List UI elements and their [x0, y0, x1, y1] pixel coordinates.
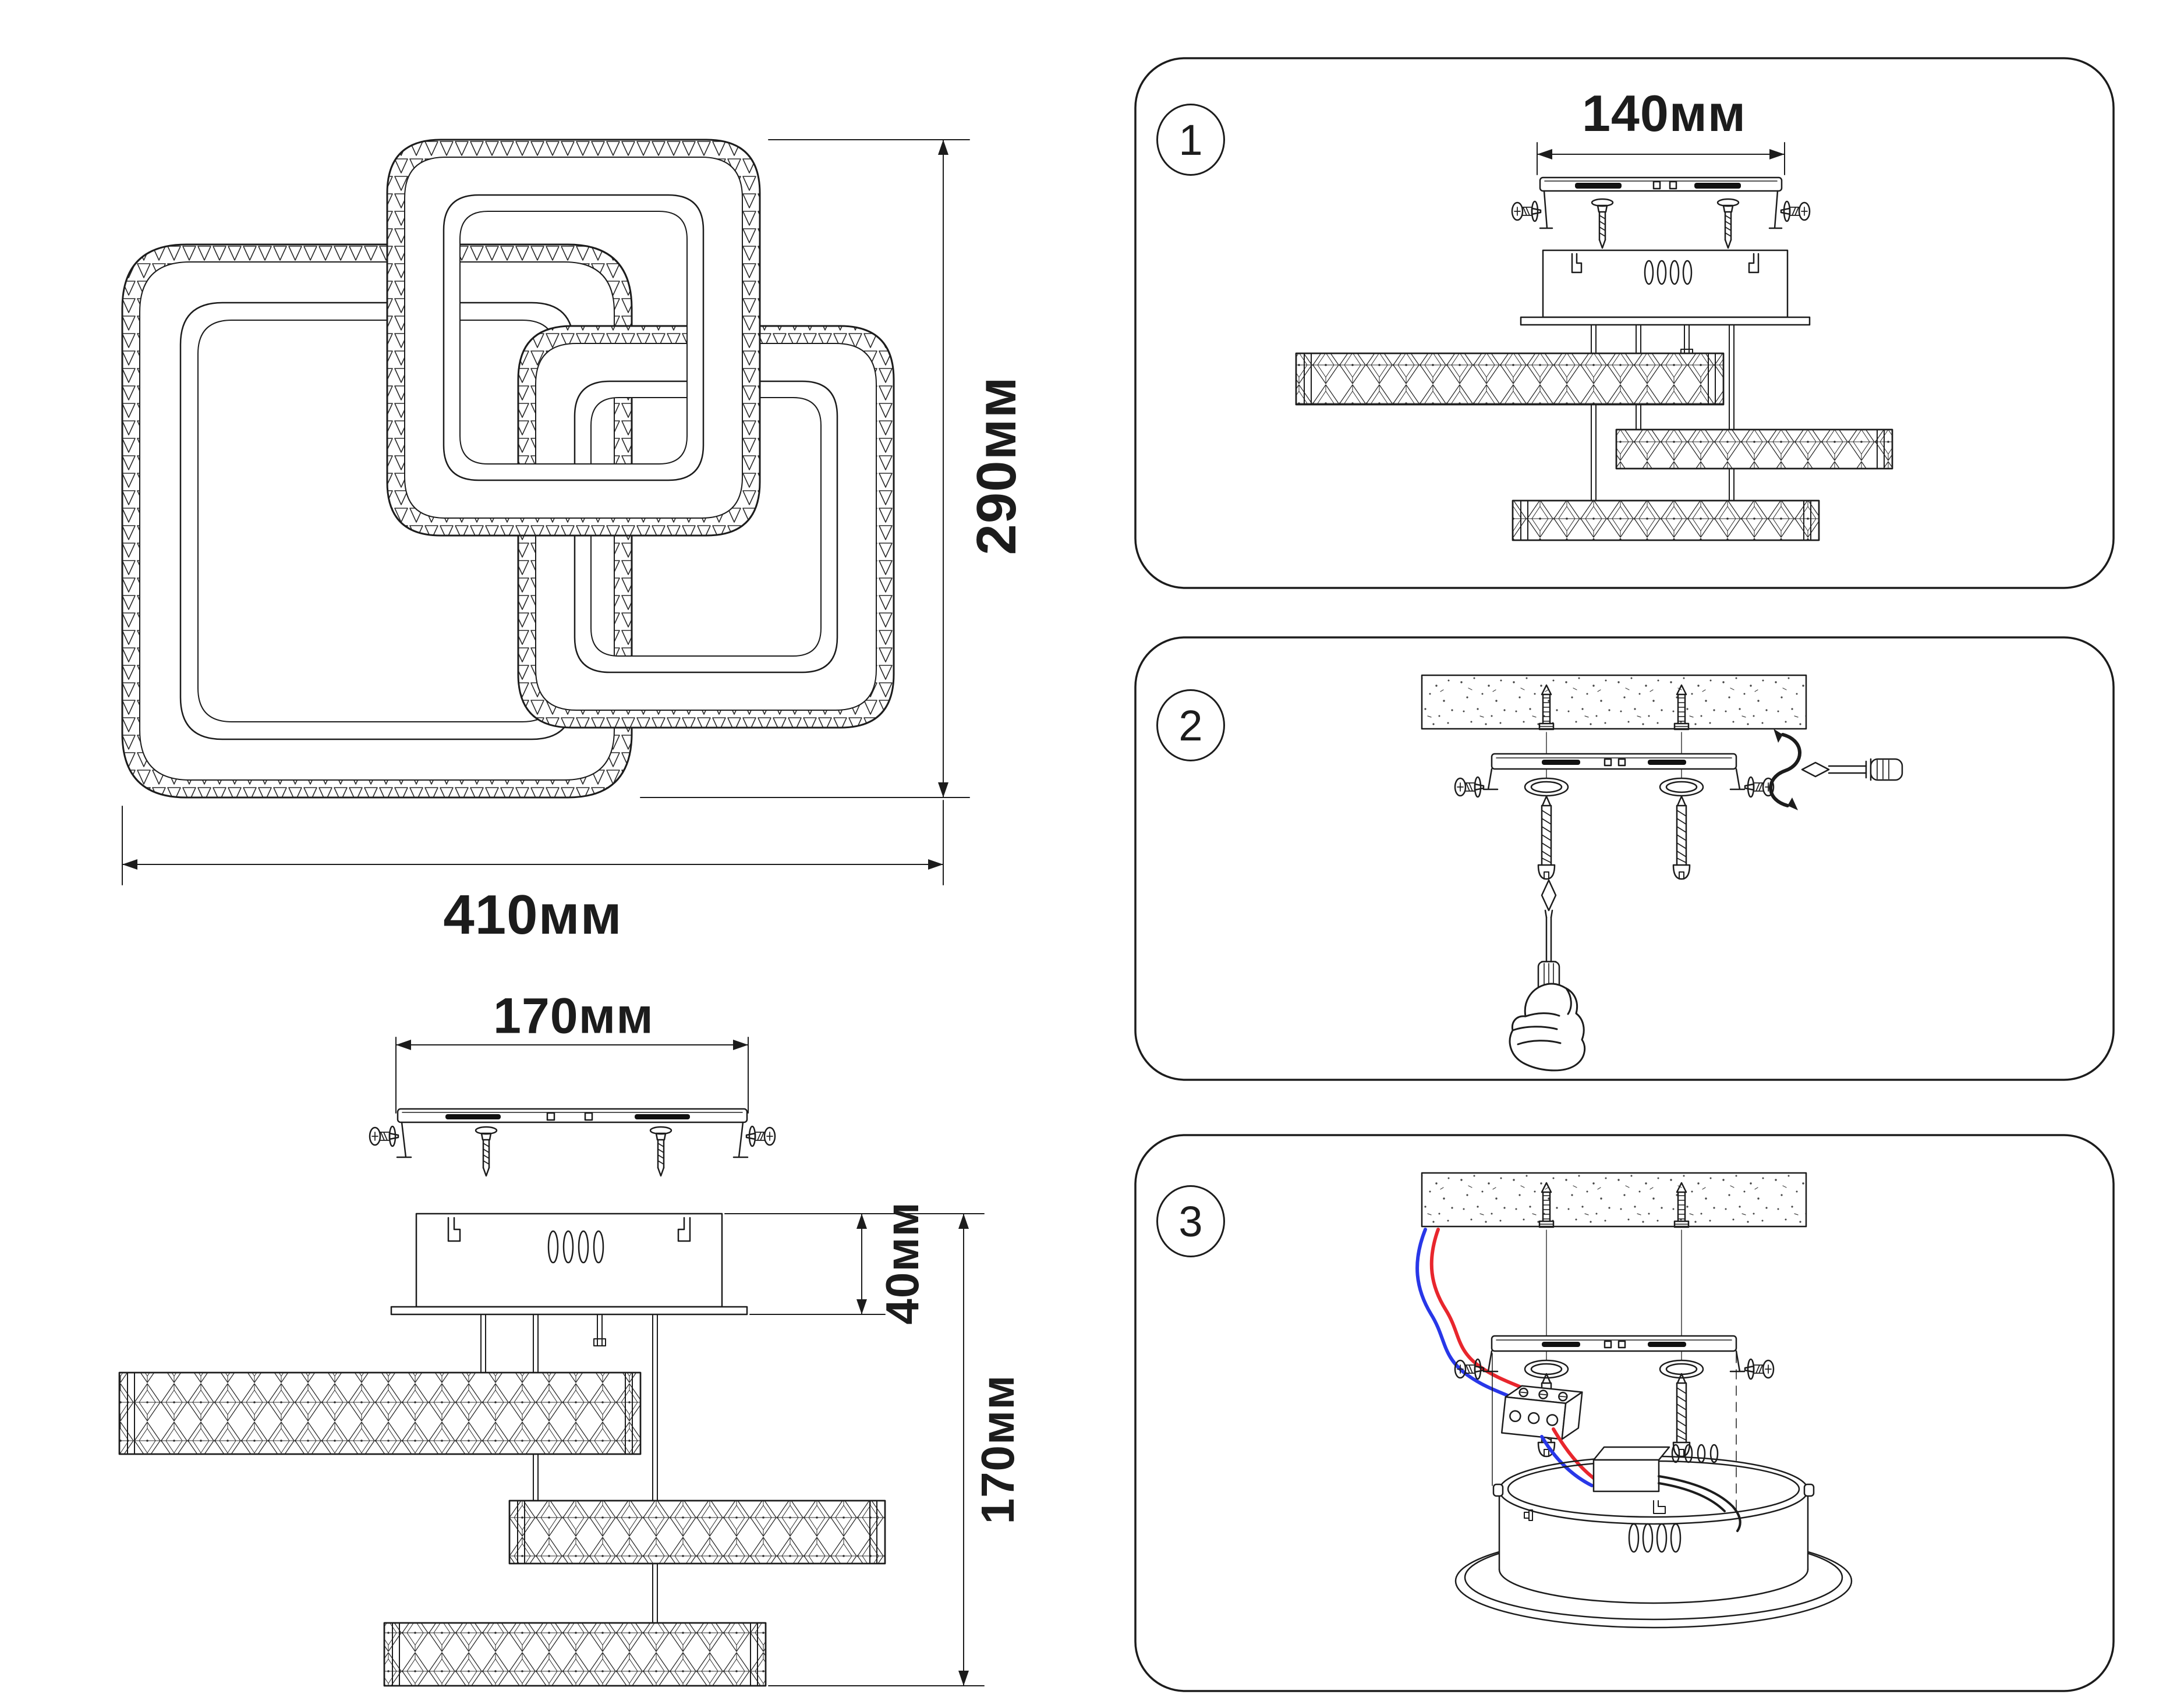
top-view-height-label: 290мм — [965, 376, 1029, 555]
screwdriver-horizontal-icon — [1802, 759, 1902, 780]
step2-number-badge: 2 — [1156, 689, 1225, 761]
side-view-crystal-bars — [119, 1373, 885, 1686]
side-view-width-label: 170мм — [493, 988, 654, 1045]
side-view-drawing — [119, 1037, 984, 1686]
step1-dimension — [1537, 143, 1785, 175]
step2-illustration — [1422, 675, 1902, 1070]
neutral-wire-stub — [1542, 1437, 1592, 1486]
step1-crystal-bars — [1296, 353, 1892, 540]
side-view-rods — [481, 1314, 657, 1623]
step1-number-badge: 1 — [1156, 104, 1225, 176]
terminal-block-icon — [1502, 1384, 1582, 1441]
technical-drawing — [0, 0, 2184, 1698]
hand-icon — [1510, 984, 1585, 1070]
side-view-bracket — [370, 1109, 775, 1176]
mounting-screw-right — [1673, 796, 1690, 879]
instruction-sheet: 410мм 290мм 170мм 40мм 170мм 140мм 1 2 3 — [0, 0, 2184, 1698]
live-wire-stub — [1553, 1429, 1597, 1480]
step1-bracket — [1512, 178, 1810, 248]
top-view-width-label: 410мм — [443, 883, 622, 947]
side-view-canopy-height-label: 40мм — [876, 1201, 929, 1324]
fixture-wire — [1659, 1483, 1725, 1511]
side-view-right-dimensions — [725, 1214, 984, 1686]
step3-illustration — [1417, 1173, 1852, 1628]
side-view-top-dimension — [396, 1037, 748, 1113]
mounting-screw-left — [1538, 796, 1555, 879]
side-view-canopy — [391, 1214, 747, 1314]
step1-canopy — [1521, 250, 1810, 325]
step1-rods — [1591, 325, 1734, 501]
round-canopy-icon — [1456, 1445, 1852, 1628]
side-view-total-height-label: 170мм — [971, 1375, 1025, 1525]
step1-illustration — [1296, 143, 1892, 540]
step3-number-badge: 3 — [1156, 1185, 1225, 1257]
rotate-arrow-icon — [1771, 729, 1800, 810]
step1-bracket-width-label: 140мм — [1582, 84, 1746, 143]
top-view-drawing — [122, 140, 969, 885]
screwdriver-vertical-icon — [1538, 880, 1559, 1000]
